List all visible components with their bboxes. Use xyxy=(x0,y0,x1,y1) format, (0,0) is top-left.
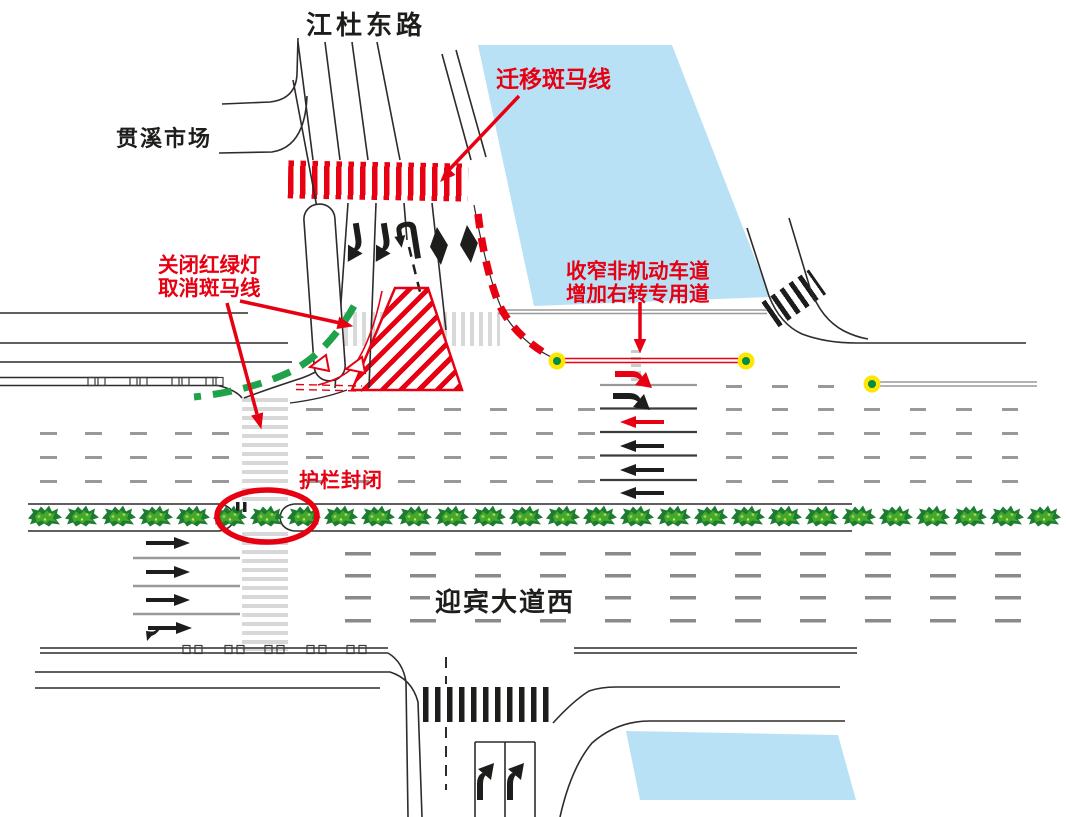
annotation-close-signal-line1: 关闭红绿灯 xyxy=(158,255,261,278)
bush xyxy=(842,506,876,527)
arrowhead xyxy=(635,340,646,353)
straight-arrow-east xyxy=(146,537,190,549)
diamond-marking xyxy=(428,226,450,266)
new-straight-arrow-red xyxy=(620,416,664,428)
annotation-close-signal-line2: 取消斑马线 xyxy=(158,278,261,301)
arrowhead xyxy=(252,413,263,428)
bush xyxy=(583,506,617,527)
median-closure-post xyxy=(236,502,240,512)
bush xyxy=(916,506,950,527)
annotation-close-signal: 关闭红绿灯 取消斑马线 xyxy=(158,255,261,300)
bush xyxy=(28,506,62,527)
bush xyxy=(435,506,469,527)
bush xyxy=(102,506,136,527)
place-name-guanxi-market: 贯溪市场 xyxy=(116,121,212,153)
annotation-guardrail-closed: 护栏封闭 xyxy=(299,464,383,493)
bush xyxy=(361,506,395,527)
traffic-plan-diagram: 江杜东路 贯溪市场 迁移斑马线 关闭红绿灯 取消斑马线 收窄非机动车道 增加右转… xyxy=(0,0,1066,817)
bush xyxy=(805,506,839,527)
median-closure-post xyxy=(243,502,247,512)
bush xyxy=(990,506,1024,527)
road-name-yingbin-avenue-west: 迎宾大道西 xyxy=(430,582,580,619)
straight-right-arrow xyxy=(146,622,192,641)
bush xyxy=(694,506,728,527)
median-bushes xyxy=(28,506,1061,527)
bush xyxy=(620,506,654,527)
bush xyxy=(176,506,210,527)
bush xyxy=(65,506,99,527)
bush xyxy=(768,506,802,527)
diamond-marking xyxy=(458,224,480,264)
sidewalk-lines xyxy=(498,310,1037,386)
arrowhead xyxy=(441,167,455,181)
bollard-dot xyxy=(549,353,566,370)
bush xyxy=(731,506,765,527)
annotation-narrow-lane: 收窄非机动车道 增加右转专用道 xyxy=(566,261,710,307)
bush xyxy=(546,506,580,527)
bush xyxy=(657,506,691,527)
bush xyxy=(398,506,432,527)
building-block-south xyxy=(626,731,856,800)
bush xyxy=(250,506,284,527)
bush xyxy=(509,506,543,527)
bollard-dot xyxy=(864,376,881,393)
bush xyxy=(1027,506,1061,527)
bollard-dot xyxy=(738,353,755,370)
straight-arrow xyxy=(620,440,664,452)
bush xyxy=(879,506,913,527)
yield-triangle xyxy=(346,357,365,373)
bush xyxy=(472,506,506,527)
bush xyxy=(324,506,358,527)
straight-arrow-east xyxy=(146,594,190,606)
straight-arrow-east xyxy=(146,566,190,578)
lane-divider-lines xyxy=(133,385,697,614)
straight-arrow xyxy=(620,464,664,476)
annotation-narrow-lane-line2: 增加右转专用道 xyxy=(566,284,710,307)
bush xyxy=(139,506,173,527)
u-turn-arrow xyxy=(392,220,421,261)
south-right-turn-arrow xyxy=(477,763,494,800)
road-name-jiangdu-east: 江杜东路 xyxy=(306,5,426,42)
annotation-move-crosswalk: 迁移斑马线 xyxy=(496,60,611,94)
south-right-turn-arrow xyxy=(507,763,524,800)
annotation-narrow-lane-line1: 收窄非机动车道 xyxy=(566,261,710,284)
bush xyxy=(953,506,987,527)
straight-arrow xyxy=(620,487,664,499)
